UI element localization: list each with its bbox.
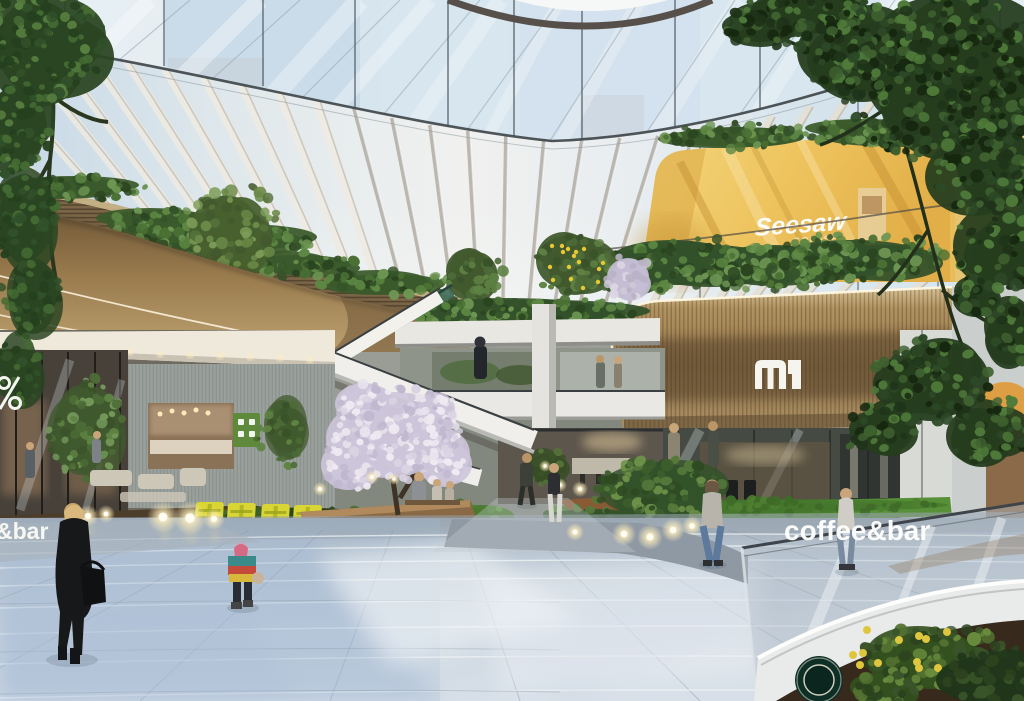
svg-text:coffee&bar: coffee&bar [784, 515, 930, 546]
svg-text:&bar: &bar [0, 518, 48, 544]
